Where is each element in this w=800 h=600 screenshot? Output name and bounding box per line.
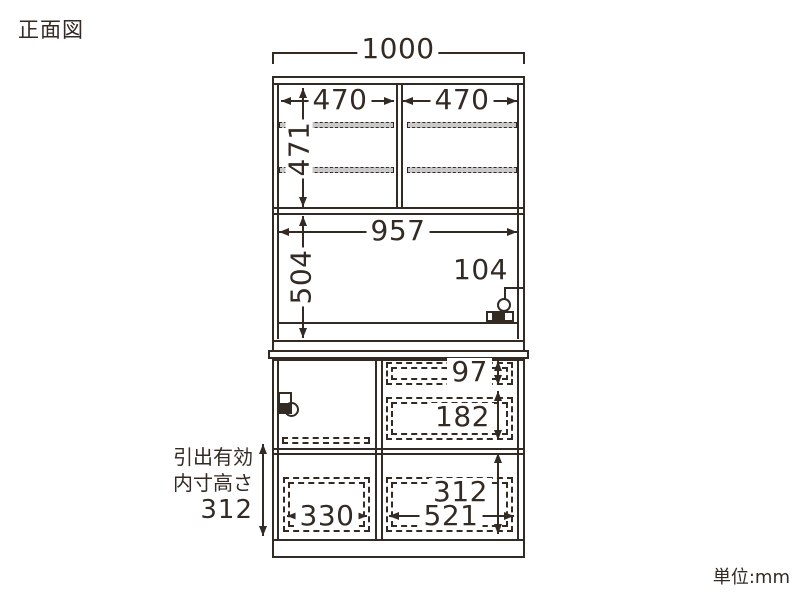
shelf-bar	[407, 122, 517, 128]
drawer-note-value: 312	[150, 496, 253, 524]
dim-line-note-drawer-height	[262, 444, 264, 536]
dim-label-right-drawer-width: 521	[420, 502, 483, 529]
dim-line-middle-drawer-height	[497, 391, 499, 440]
drawer-note-line1: 引出有効	[150, 444, 253, 470]
upper-middle-divider-line	[274, 207, 523, 209]
dim-line-drawer-inner-height	[497, 453, 499, 534]
drawer-note: 引出有効 内寸高さ 312	[150, 444, 253, 524]
page-title: 正面図	[18, 14, 84, 44]
lower-row-divider-line	[274, 453, 523, 455]
dim-label-open-inner-height: 504	[288, 248, 315, 307]
lower-center-divider-line	[381, 361, 383, 539]
door-shelf-dashed	[282, 437, 370, 444]
sliding-door-divider-line	[396, 85, 398, 207]
dim-line-upper-drawer-height	[497, 361, 499, 385]
outlet-icon	[492, 313, 505, 320]
dim-label-left-drawer-width: 330	[296, 502, 359, 529]
dim-label-middle-drawer-height: 182	[431, 403, 494, 430]
dim-label-upper-inner-height: 471	[286, 120, 313, 179]
lower-right-inner-wall	[517, 361, 519, 539]
dim-label-outlet-offset: 104	[449, 256, 512, 283]
dim-label-overall-width: 1000	[357, 35, 438, 62]
lower-row-divider-line	[274, 448, 523, 450]
dim-label-right-door-width: 470	[431, 86, 494, 113]
dim-label-left-door-width: 470	[309, 86, 372, 113]
dim-label-upper-drawer-height: 97	[447, 358, 492, 385]
drawer-note-line2: 内寸高さ	[150, 470, 253, 496]
door-handle-icon	[284, 402, 299, 417]
dim-label-open-inner-width: 957	[367, 217, 430, 244]
dim-tick	[272, 52, 274, 64]
lower-left-inner-wall	[277, 361, 279, 539]
outlet-icon	[497, 298, 511, 312]
front-view-diagram: 正面図 単位:mm	[0, 0, 800, 600]
dim-tick	[523, 52, 525, 64]
lower-floor-line	[274, 539, 523, 541]
shelf-bar	[407, 167, 517, 173]
lower-center-divider-line	[375, 361, 377, 539]
open-section-floor-line	[277, 322, 519, 324]
upper-right-inner-wall	[517, 85, 519, 339]
outlet-leader-line	[504, 287, 523, 289]
unit-label: 単位:mm	[713, 563, 790, 589]
